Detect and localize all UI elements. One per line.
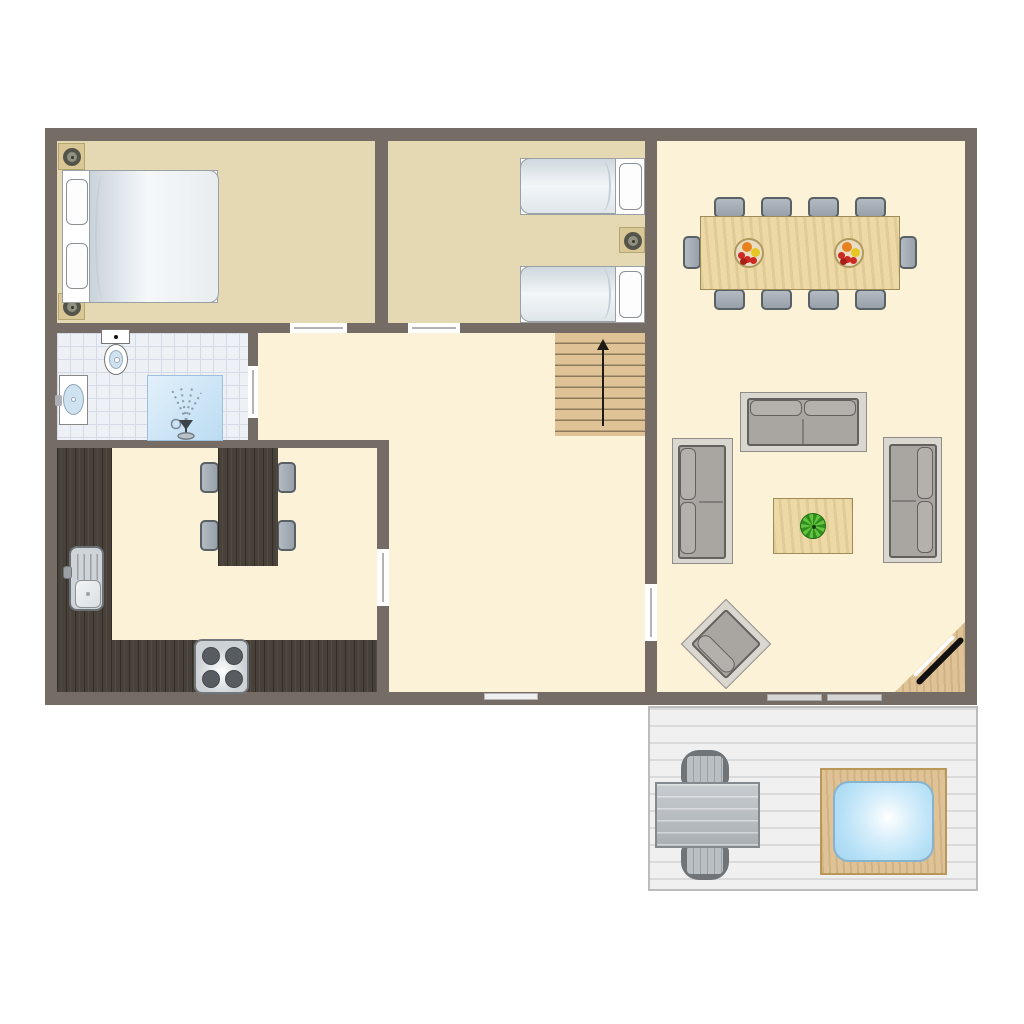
duvet-fold (595, 269, 611, 319)
kitchen-chair (277, 462, 296, 493)
sink-tap (63, 566, 72, 579)
fruit-yellow (751, 248, 760, 257)
sofa-back-cushion (804, 400, 856, 416)
fruit-grape (750, 257, 757, 264)
outdoor-chair-seat (687, 756, 723, 784)
fruit-grape (850, 257, 857, 264)
fruit-yellow (851, 248, 860, 257)
dining-chair (808, 289, 839, 310)
room-hallway (258, 333, 389, 440)
duvet-fold (595, 161, 611, 211)
shower (147, 375, 223, 441)
spotlight (58, 143, 85, 170)
washbasin-tap (55, 395, 62, 406)
kitchen-sink-unit (69, 546, 104, 611)
spotlight-dot (71, 306, 74, 309)
sofa (672, 438, 733, 564)
fruit-grape (740, 258, 747, 265)
door-leaf (382, 553, 384, 602)
kitchen-table (218, 448, 278, 566)
double-bed (62, 170, 218, 303)
door-bedroom-twin (408, 323, 460, 333)
door-leaf (650, 588, 652, 637)
sofa-seam (802, 419, 804, 444)
dining-chair (855, 197, 886, 218)
stove (194, 639, 249, 694)
hallway-window (484, 693, 538, 700)
kitchen-chair (200, 462, 219, 493)
sofa-seam (892, 500, 916, 502)
sofa-back-cushion (917, 501, 933, 553)
sink-drainboard (77, 554, 99, 580)
dining-chair (683, 236, 701, 269)
dining-chair (899, 236, 917, 269)
potted-plant (800, 513, 826, 539)
sofa (883, 437, 942, 563)
door-leaf (412, 327, 456, 329)
sofa-back-cushion (680, 502, 696, 554)
outdoor-chair-seat (687, 846, 723, 874)
toilet-drain (114, 357, 120, 363)
washbasin (63, 384, 84, 415)
door-kitchen (377, 549, 389, 606)
outdoor-table (655, 782, 760, 848)
stairs-up-arrow-icon (602, 348, 604, 426)
sofa-back-cushion (917, 447, 933, 499)
sofa-seam (699, 501, 723, 503)
spotlight-dot (632, 240, 635, 243)
door-living-room (645, 584, 657, 641)
dining-chair (761, 197, 792, 218)
floor-plan (0, 0, 1024, 1024)
single-bed (520, 266, 645, 323)
fruit-bowl (834, 238, 864, 268)
sofa-back-cushion (750, 400, 802, 416)
dining-chair (714, 289, 745, 310)
toilet-button (114, 335, 118, 339)
spotlight-dot (71, 156, 74, 159)
pillow (66, 243, 88, 289)
dining-chair (714, 197, 745, 218)
burner (225, 670, 243, 688)
pillow (619, 163, 642, 210)
plant-center (812, 525, 816, 529)
fruit-grape (840, 258, 847, 265)
door-bedroom-double (290, 323, 347, 333)
burner (225, 647, 243, 665)
pillow (619, 271, 642, 318)
terrace-sliding-door (827, 694, 882, 701)
toilet-tank (101, 329, 130, 344)
door-leaf (294, 327, 343, 329)
washbasin-drain (71, 397, 76, 402)
dining-chair (761, 289, 792, 310)
burner (202, 670, 220, 688)
shower-spray-icon (148, 376, 224, 442)
dining-table (700, 216, 900, 290)
terrace-sliding-door (767, 694, 822, 701)
toilet-basin (109, 350, 123, 369)
single-bed (520, 158, 645, 215)
fruit-bowl (734, 238, 764, 268)
stairs-arrowhead-icon (597, 339, 609, 350)
sofa-back-cushion (680, 448, 696, 500)
dining-chair (808, 197, 839, 218)
kitchen-chair (200, 520, 219, 551)
sofa (740, 392, 867, 452)
dining-chair (855, 289, 886, 310)
kitchen-chair (277, 520, 296, 551)
hot-tub-water (833, 781, 934, 862)
burner (202, 647, 220, 665)
door-bathroom (248, 366, 258, 418)
pillow (66, 179, 88, 225)
spotlight (619, 227, 645, 253)
door-leaf (252, 370, 254, 414)
duvet-fold (95, 174, 111, 299)
sink-drain (86, 592, 90, 596)
